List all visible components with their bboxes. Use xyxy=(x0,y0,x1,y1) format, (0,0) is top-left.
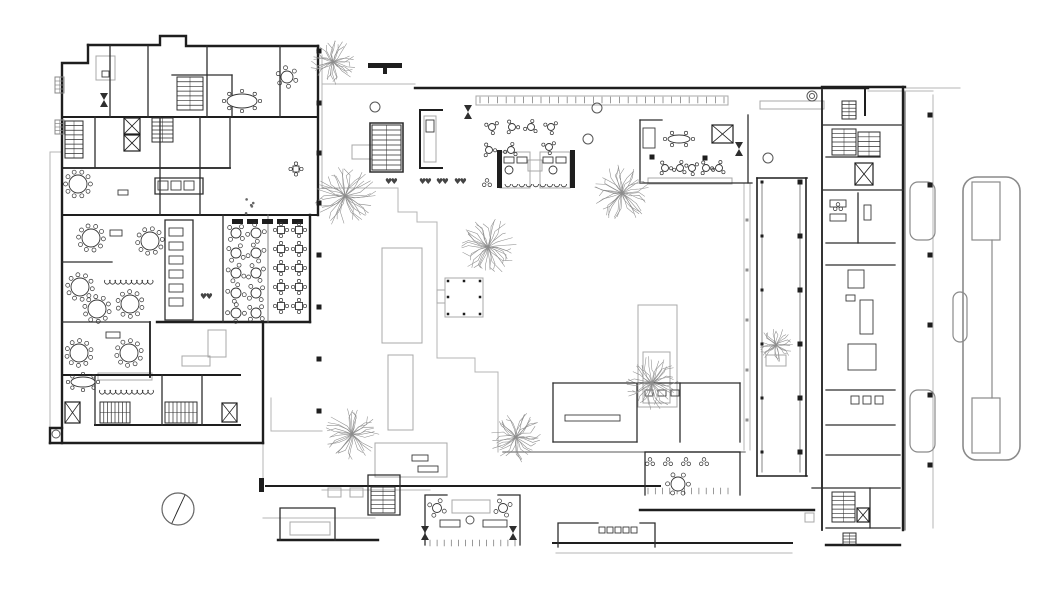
furniture-rect xyxy=(671,390,679,396)
trees-layer xyxy=(311,41,792,462)
revolving-door-icon xyxy=(464,105,472,119)
light-rect xyxy=(350,488,363,497)
column xyxy=(317,101,322,106)
elevator-icon xyxy=(855,163,873,185)
stairs-icon xyxy=(152,118,173,142)
stairs-icon xyxy=(65,121,83,158)
furniture-rect xyxy=(504,157,514,163)
elevator-icon xyxy=(857,508,869,522)
column xyxy=(761,343,764,346)
round-table xyxy=(226,303,247,324)
round-table xyxy=(524,119,538,132)
furniture-rect xyxy=(864,205,871,220)
column xyxy=(928,183,933,188)
furniture-rect xyxy=(556,157,566,163)
compass-layer xyxy=(162,493,194,525)
stairs-icon xyxy=(165,402,197,423)
driveway-loop-layer xyxy=(910,177,1020,460)
column xyxy=(479,313,482,316)
column xyxy=(798,342,803,347)
solid-block xyxy=(368,63,402,68)
solid-block xyxy=(232,219,243,224)
square-table xyxy=(273,241,288,256)
circle-mark xyxy=(466,516,474,524)
driveway-island xyxy=(972,398,1000,453)
round-table xyxy=(66,273,95,301)
furniture-rect xyxy=(623,527,629,533)
round-table xyxy=(504,142,518,155)
furniture-rect xyxy=(102,71,109,77)
column xyxy=(703,156,708,161)
round-table xyxy=(428,499,446,517)
round-table xyxy=(494,499,512,517)
stairs-icon xyxy=(177,77,203,110)
furniture-rect xyxy=(875,396,883,404)
column xyxy=(317,409,322,414)
square-table xyxy=(291,222,306,237)
round-table xyxy=(77,224,106,252)
furniture-rect xyxy=(599,527,605,533)
column xyxy=(798,396,803,401)
furniture-rect xyxy=(412,455,428,461)
stool-cluster xyxy=(645,458,654,466)
solid-block xyxy=(497,150,502,188)
furniture-rect xyxy=(846,295,855,301)
solid-block xyxy=(262,219,273,224)
square-table xyxy=(291,279,306,294)
elevator-icon xyxy=(222,403,237,422)
column xyxy=(798,450,803,455)
square-table xyxy=(291,298,306,313)
conference-table xyxy=(222,89,261,112)
round-table xyxy=(226,263,246,283)
furniture-rect xyxy=(848,344,876,370)
elevator-icon xyxy=(124,135,140,151)
furniture-rect xyxy=(848,270,864,288)
column xyxy=(317,253,322,258)
light-rect xyxy=(805,513,814,522)
furniture-rect xyxy=(643,128,655,148)
furniture-rect xyxy=(184,181,194,190)
column xyxy=(798,180,803,185)
round-table xyxy=(228,225,245,242)
light-rect xyxy=(208,330,226,357)
light-rect xyxy=(182,356,210,366)
revolving-door-icon xyxy=(509,526,517,540)
column xyxy=(761,181,764,184)
furniture-rect xyxy=(565,415,620,421)
round-table xyxy=(246,223,267,244)
column xyxy=(761,235,764,238)
floor-plan-page: ♥♥♥♥♥♥♥♥♥♥ xyxy=(0,0,1060,597)
round-table xyxy=(226,283,246,303)
love-seat-icon: ♥♥ xyxy=(436,177,449,186)
round-table xyxy=(116,290,144,319)
circle-mark xyxy=(763,153,773,163)
stool-cluster xyxy=(699,458,708,466)
round-table xyxy=(549,166,557,174)
column xyxy=(650,155,655,160)
tree-icon xyxy=(315,168,376,225)
furniture-rect xyxy=(615,527,621,533)
round-table xyxy=(484,143,497,157)
round-table xyxy=(246,243,266,263)
column xyxy=(746,419,749,422)
light-rect xyxy=(760,101,824,109)
round-table xyxy=(485,122,499,135)
column xyxy=(746,219,749,222)
tree-icon xyxy=(326,409,379,459)
love-seat-icon: ♥♥ xyxy=(200,292,213,301)
column xyxy=(746,369,749,372)
furniture-rect xyxy=(418,466,438,472)
column xyxy=(928,463,933,468)
furniture-rect xyxy=(169,270,183,278)
round-table xyxy=(227,244,245,262)
furniture-rect xyxy=(106,332,120,338)
furniture-rect xyxy=(830,214,846,221)
furniture-rect xyxy=(851,396,859,404)
revolving-door-icon xyxy=(421,526,429,540)
elevator-icon xyxy=(65,402,80,423)
elevator-icon xyxy=(124,118,140,134)
round-table xyxy=(701,161,714,175)
round-table xyxy=(248,305,264,321)
furniture-rect xyxy=(110,230,122,236)
round-table xyxy=(544,122,558,135)
solid-block xyxy=(259,478,264,492)
column xyxy=(798,234,803,239)
elevator-icon xyxy=(712,125,733,143)
furniture-rect xyxy=(169,228,183,236)
column xyxy=(463,280,466,283)
furniture-rect xyxy=(169,242,183,250)
stairs-icon xyxy=(843,533,856,545)
round-table xyxy=(660,161,673,175)
round-table xyxy=(83,295,111,324)
light-rect xyxy=(328,488,341,497)
tree-icon xyxy=(492,414,541,462)
column xyxy=(798,288,803,293)
stairs-icon xyxy=(842,101,856,119)
furniture-rect xyxy=(169,256,183,264)
column xyxy=(447,296,450,299)
stool-cluster xyxy=(482,179,491,187)
furniture-rect xyxy=(169,298,183,306)
column xyxy=(928,323,933,328)
dot-scatter-layer xyxy=(245,198,255,215)
column xyxy=(761,289,764,292)
walls-heavy-layer xyxy=(50,36,905,545)
circle-mark xyxy=(583,134,593,144)
stairs-icon xyxy=(832,129,856,155)
round-table xyxy=(507,120,520,134)
tick-rows-layer xyxy=(430,97,728,546)
light-rect xyxy=(290,522,330,535)
square-table xyxy=(273,222,288,237)
circle-mark xyxy=(807,91,817,101)
round-table xyxy=(136,227,165,255)
love-seat-icon: ♥♥ xyxy=(419,177,432,186)
circle-mark xyxy=(370,102,380,112)
light-rect xyxy=(437,290,445,303)
round-tables-layer xyxy=(64,66,725,518)
furniture-rect xyxy=(169,284,183,292)
solid-block xyxy=(570,150,575,188)
furniture-rect xyxy=(118,190,128,195)
round-table xyxy=(673,160,686,173)
round-table xyxy=(64,170,93,198)
column xyxy=(928,253,933,258)
column xyxy=(317,305,322,310)
love-seat-icon: ♥♥ xyxy=(385,177,398,186)
driveway-island xyxy=(953,292,967,342)
round-table xyxy=(666,473,691,495)
driveway-island xyxy=(910,182,935,240)
furniture-rect xyxy=(607,527,613,533)
column xyxy=(761,397,764,400)
light-rect xyxy=(382,248,422,343)
round-table xyxy=(542,142,556,155)
light-rect xyxy=(388,355,413,430)
round-table xyxy=(505,166,513,174)
furniture-rect xyxy=(860,300,873,334)
light-rect xyxy=(766,355,786,366)
tree-icon xyxy=(760,329,792,361)
column xyxy=(746,319,749,322)
revolving-door-icon xyxy=(100,93,108,107)
conference-table xyxy=(663,131,694,147)
landscape-lines-layer xyxy=(50,55,960,553)
square-table xyxy=(273,298,288,313)
stairs-icon xyxy=(832,492,855,522)
tree-icon xyxy=(462,219,516,271)
light-rect xyxy=(445,278,483,317)
furniture-rect xyxy=(517,157,527,163)
furniture-rect xyxy=(483,520,507,527)
square-tables-layer xyxy=(273,162,306,314)
furniture-rect xyxy=(426,120,434,132)
love-seat-icon: ♥♥ xyxy=(454,177,467,186)
furniture-rect xyxy=(863,396,871,404)
light-rect xyxy=(452,500,490,513)
round-table xyxy=(115,339,143,368)
stairs-icon xyxy=(100,402,130,423)
stairs-icon xyxy=(858,132,880,156)
column xyxy=(317,201,322,206)
column xyxy=(479,280,482,283)
round-table xyxy=(685,163,699,176)
square-table xyxy=(291,241,306,256)
column xyxy=(479,296,482,299)
square-table xyxy=(291,260,306,275)
column xyxy=(447,313,450,316)
columns-layer xyxy=(317,49,933,468)
column xyxy=(928,113,933,118)
revolving-door-icon xyxy=(735,142,743,156)
column xyxy=(746,269,749,272)
floor-plan-svg: ♥♥♥♥♥♥♥♥♥♥ xyxy=(0,0,1060,597)
furniture-rect xyxy=(440,520,460,527)
circle-mark xyxy=(810,94,815,99)
furniture-rect xyxy=(543,157,553,163)
stool-cluster xyxy=(681,458,690,466)
stool-cluster xyxy=(663,458,672,466)
round-table xyxy=(247,284,264,301)
square-table xyxy=(273,279,288,294)
furniture-rect xyxy=(171,181,181,190)
stairs-icon xyxy=(372,125,401,170)
column xyxy=(761,451,764,454)
column xyxy=(317,357,322,362)
round-table xyxy=(247,264,266,283)
square-table xyxy=(289,162,303,176)
furniture-rects-layer xyxy=(102,71,883,533)
column xyxy=(928,393,933,398)
round-table xyxy=(65,339,93,368)
column xyxy=(447,280,450,283)
driveway-island xyxy=(910,390,935,452)
furniture-rect xyxy=(631,527,637,533)
square-table xyxy=(273,260,288,275)
column xyxy=(463,313,466,316)
circle-mark xyxy=(52,430,60,438)
driveway-island xyxy=(972,182,1000,240)
light-rect xyxy=(352,145,372,159)
solid-block xyxy=(383,68,387,74)
column xyxy=(317,151,322,156)
light-rect xyxy=(96,56,115,80)
stairs-icon xyxy=(371,487,395,513)
column xyxy=(317,49,322,54)
